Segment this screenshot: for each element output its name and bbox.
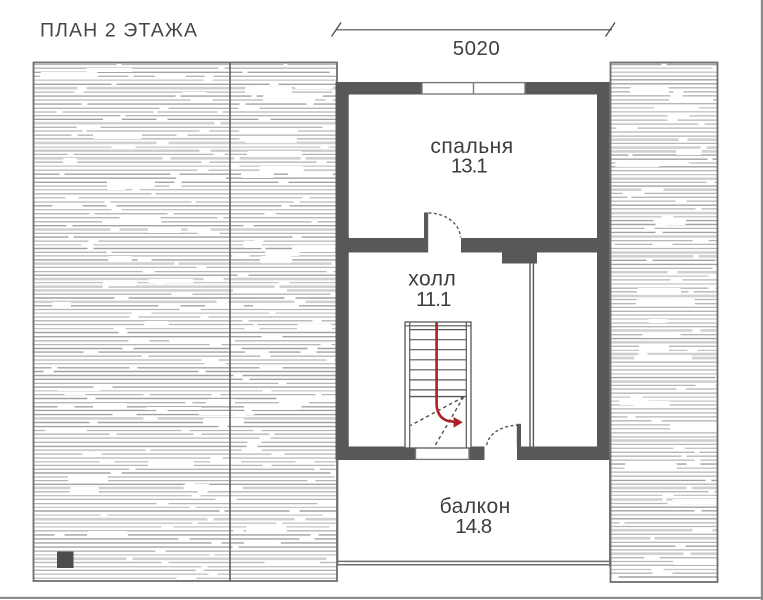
- svg-text:14.8: 14.8: [455, 515, 491, 538]
- svg-text:11.1: 11.1: [416, 288, 451, 311]
- svg-text:13.1: 13.1: [451, 155, 487, 178]
- svg-text:ПЛАН 2 ЭТАЖА: ПЛАН 2 ЭТАЖА: [40, 20, 198, 42]
- svg-text:5020: 5020: [453, 37, 501, 60]
